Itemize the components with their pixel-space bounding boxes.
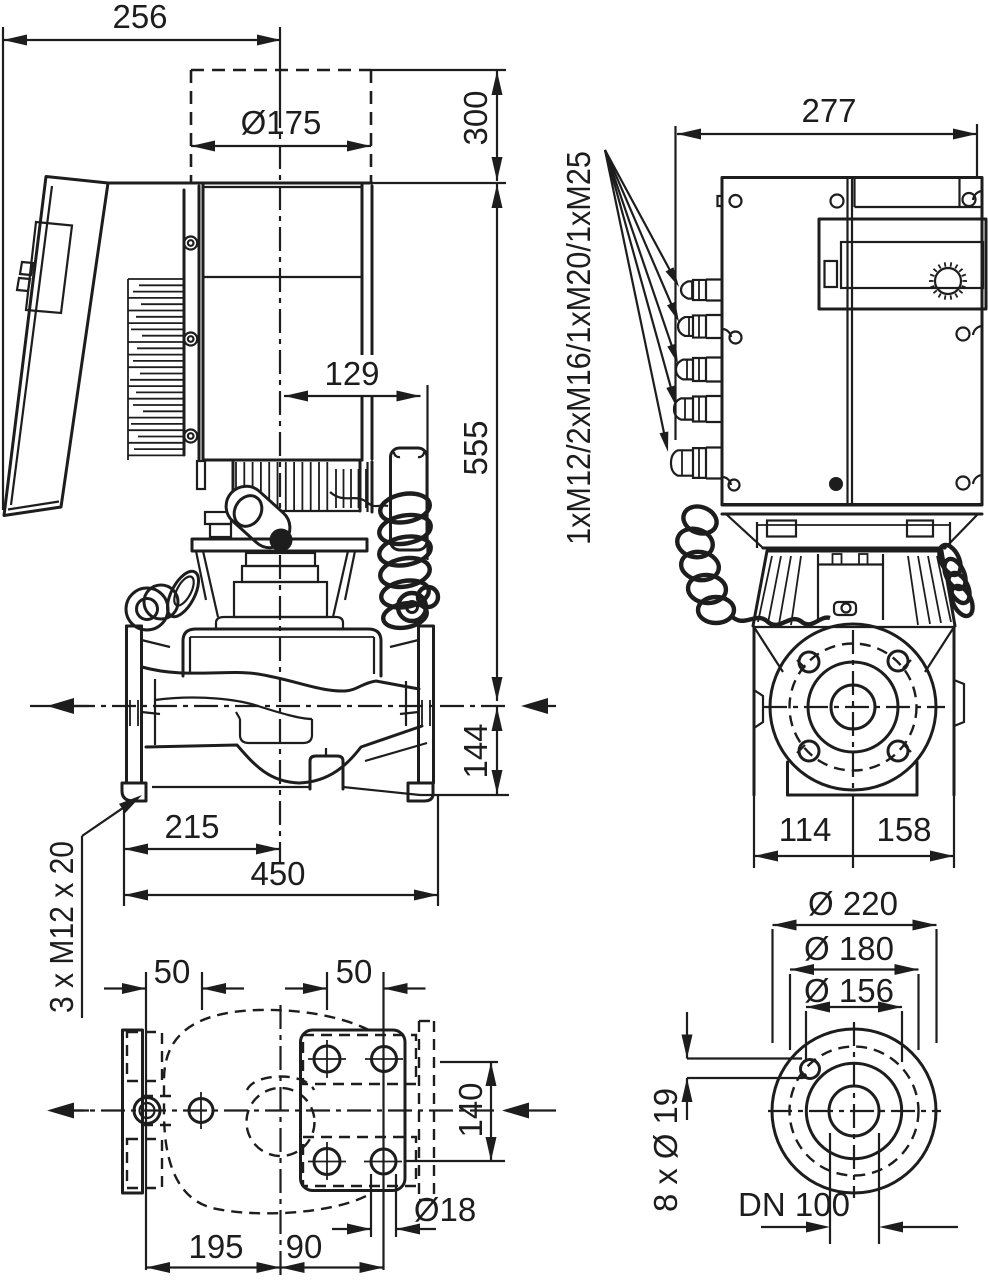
svg-text:140: 140	[452, 1082, 489, 1137]
svg-text:8 x Ø 19: 8 x Ø 19	[647, 1088, 684, 1212]
svg-text:555: 555	[457, 420, 494, 475]
svg-text:DN 100: DN 100	[738, 1186, 850, 1223]
svg-text:3 x M12 x 20: 3 x M12 x 20	[43, 841, 80, 1013]
svg-text:1xM12/2xM16/1xM20/1xM25: 1xM12/2xM16/1xM20/1xM25	[560, 151, 597, 545]
svg-text:Ø 220: Ø 220	[808, 885, 898, 922]
svg-text:158: 158	[876, 811, 931, 848]
svg-text:144: 144	[457, 723, 494, 778]
svg-text:129: 129	[324, 355, 379, 392]
svg-text:114: 114	[779, 811, 832, 848]
svg-text:50: 50	[154, 953, 191, 990]
svg-text:300: 300	[457, 90, 494, 145]
svg-text:50: 50	[336, 953, 373, 990]
svg-text:277: 277	[801, 92, 856, 129]
svg-text:Ø 180: Ø 180	[804, 930, 894, 967]
svg-text:90: 90	[286, 1228, 323, 1265]
svg-text:450: 450	[250, 855, 305, 892]
svg-text:195: 195	[188, 1228, 243, 1265]
svg-text:256: 256	[112, 0, 167, 35]
svg-text:Ø175: Ø175	[241, 104, 322, 141]
svg-text:215: 215	[164, 808, 219, 845]
svg-text:Ø18: Ø18	[414, 1191, 476, 1228]
